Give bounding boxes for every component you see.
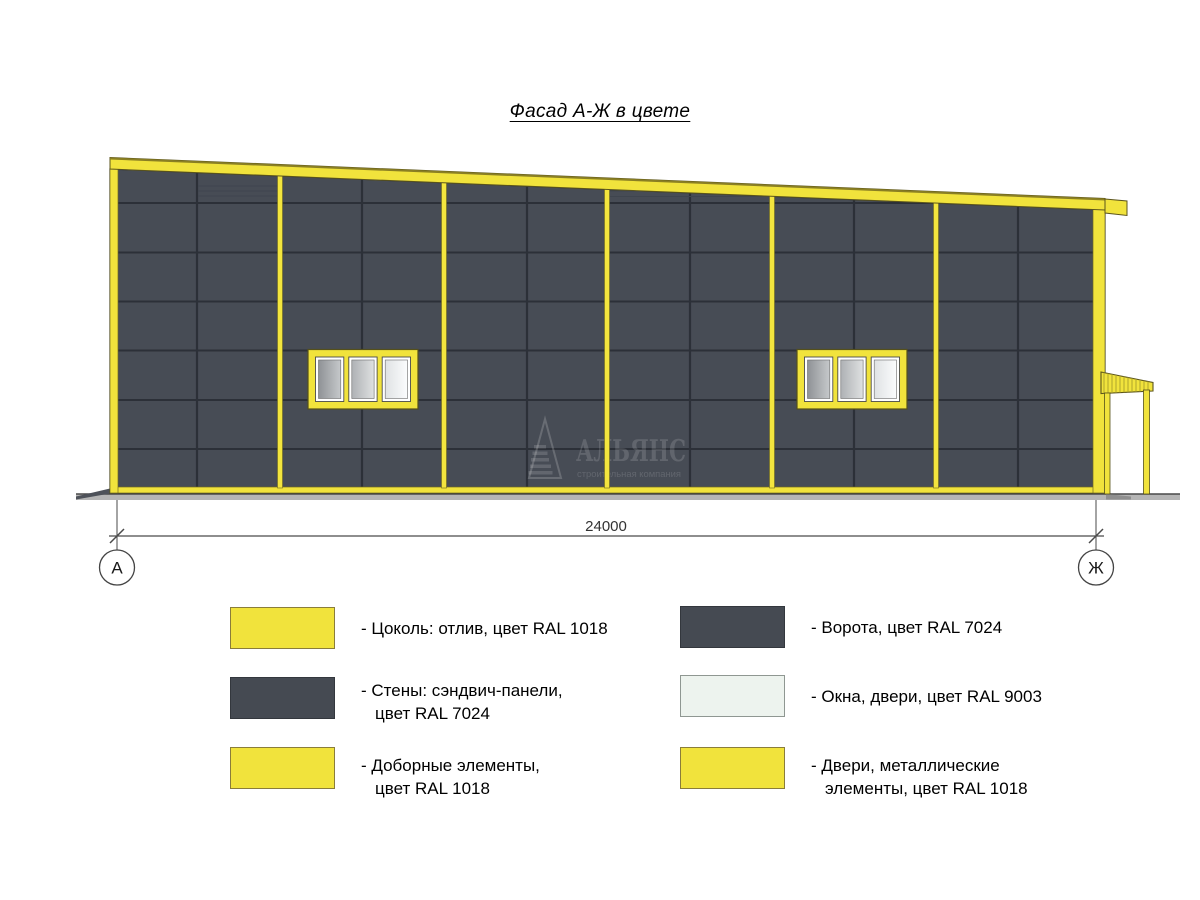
panel-mullion <box>278 175 283 488</box>
window-pane <box>874 360 896 399</box>
canopy <box>1101 370 1153 494</box>
legend-swatch <box>230 607 335 649</box>
dimension-value: 24000 <box>585 518 627 535</box>
legend-item: - Цоколь: отлив, цвет RAL 1018 <box>230 607 608 649</box>
watermark-subtitle: строительная компания <box>577 469 681 479</box>
roof-overhang <box>1105 199 1127 216</box>
canopy-post <box>1144 390 1150 494</box>
window-pane <box>841 360 863 399</box>
legend-label: - Ворота, цвет RAL 7024 <box>811 616 1002 639</box>
corner-trim-left <box>110 169 118 493</box>
window-panes <box>805 357 900 402</box>
canopy-post <box>1105 393 1111 494</box>
window-pane <box>352 360 374 399</box>
legend-label: - Двери, металлические элементы, цвет RA… <box>811 754 1028 800</box>
window-pane <box>808 360 830 399</box>
legend-item: - Окна, двери, цвет RAL 9003 <box>680 675 1042 717</box>
watermark-title: АЛЬЯНС <box>576 434 686 469</box>
window-pane <box>385 360 407 399</box>
window-panes <box>316 357 411 402</box>
legend-swatch <box>680 747 785 789</box>
legend-label: - Стены: сэндвич-панели, цвет RAL 7024 <box>361 679 563 725</box>
legend-item: - Двери, металлические элементы, цвет RA… <box>680 745 1028 791</box>
panel-mullion <box>934 202 939 488</box>
panel-mullion <box>770 196 775 489</box>
legend-item: - Ворота, цвет RAL 7024 <box>680 606 1002 648</box>
legend-label: - Окна, двери, цвет RAL 9003 <box>811 685 1042 708</box>
dimension: 24000 А Ж <box>100 500 1114 585</box>
corner-trim-right <box>1093 209 1105 493</box>
panel-mullion <box>605 189 610 489</box>
legend-item: - Стены: сэндвич-панели, цвет RAL 7024 <box>230 675 563 721</box>
window-left <box>308 350 418 410</box>
axis-label-right: Ж <box>1088 559 1104 578</box>
legend-swatch <box>230 677 335 719</box>
legend-item: - Доборные элементы, цвет RAL 1018 <box>230 745 540 791</box>
legend-swatch <box>230 747 335 789</box>
window-right <box>797 350 907 410</box>
legend-label: - Доборные элементы, цвет RAL 1018 <box>361 754 540 800</box>
legend-swatch <box>680 606 785 648</box>
window-pane <box>319 360 341 399</box>
legend-swatch <box>680 675 785 717</box>
panel-mullion <box>442 182 447 488</box>
ground-strip <box>76 494 1180 500</box>
facade-drawing: АЛЬЯНС строительная компания <box>0 0 1200 600</box>
axis-label-left: А <box>111 559 123 578</box>
legend-label: - Цоколь: отлив, цвет RAL 1018 <box>361 617 608 640</box>
